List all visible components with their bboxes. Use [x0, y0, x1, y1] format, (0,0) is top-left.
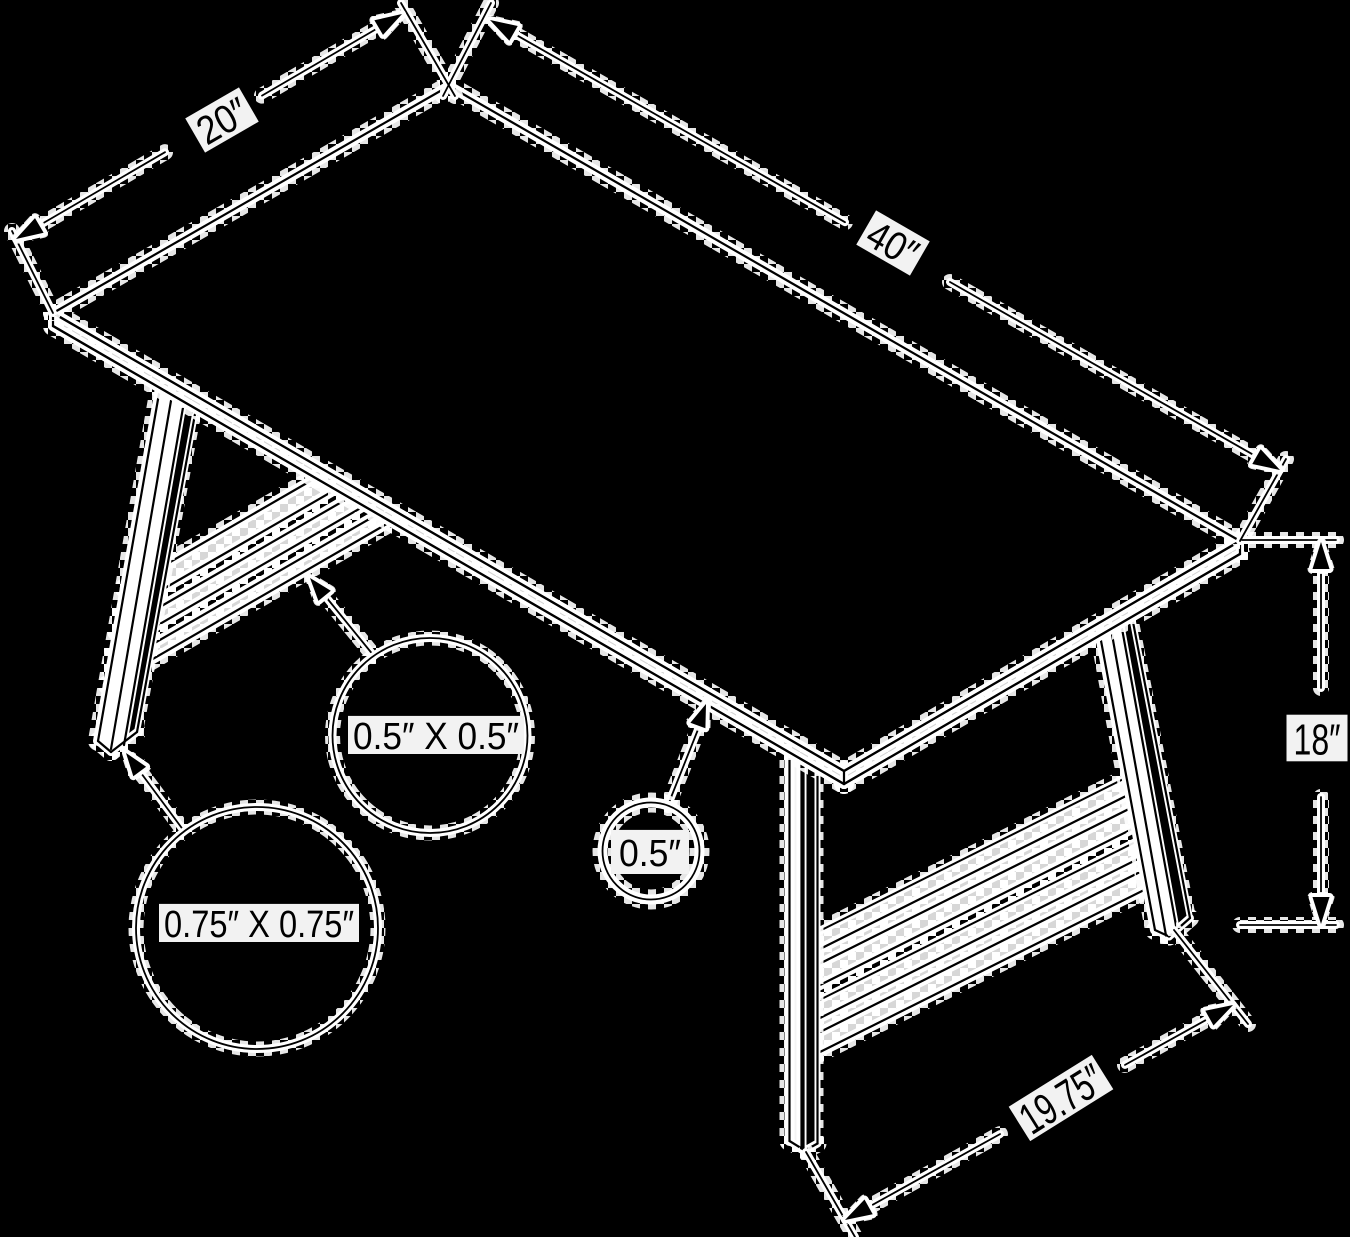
svg-text:0.75″ X 0.75″: 0.75″ X 0.75″	[164, 904, 354, 946]
svg-text:18″: 18″	[1294, 715, 1341, 764]
svg-text:0.5″: 0.5″	[619, 833, 681, 875]
svg-text:0.5″ X 0.5″: 0.5″ X 0.5″	[353, 716, 519, 758]
